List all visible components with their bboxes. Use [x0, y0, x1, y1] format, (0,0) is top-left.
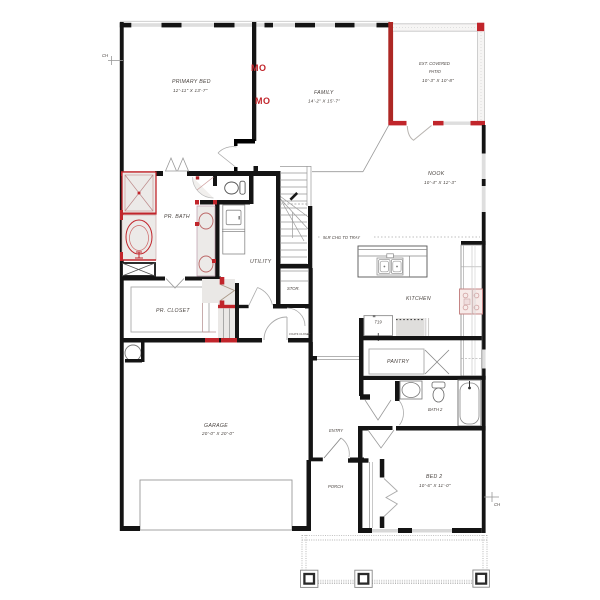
svg-text:PORCH: PORCH [328, 484, 344, 489]
svg-text:10'-4" X 12'-3": 10'-4" X 12'-3" [424, 180, 456, 185]
svg-text:UTILITY: UTILITY [250, 259, 272, 265]
svg-text:CH: CH [102, 53, 109, 58]
svg-text:PATIO: PATIO [429, 69, 442, 74]
svg-text:T19: T19 [375, 320, 383, 325]
svg-text:NOOK: NOOK [428, 171, 445, 177]
svg-text:CH: CH [494, 502, 501, 507]
svg-text:9LR CHG TO TRAY: 9LR CHG TO TRAY [323, 235, 361, 240]
svg-text:GARAGE: GARAGE [204, 423, 228, 429]
svg-text:PRIMARY BED: PRIMARY BED [172, 79, 211, 85]
svg-text:KITCHEN: KITCHEN [406, 296, 431, 302]
svg-text:COATS CLOSET: COATS CLOSET [289, 332, 311, 336]
svg-text:FAMILY: FAMILY [314, 90, 334, 96]
svg-text:EXT. COVERED: EXT. COVERED [419, 61, 450, 66]
svg-text:ENTRY: ENTRY [329, 428, 344, 433]
svg-text:PANTRY: PANTRY [387, 359, 410, 365]
svg-text:12'-11" X 13'-7": 12'-11" X 13'-7" [173, 88, 208, 93]
svg-text:MO: MO [255, 96, 271, 106]
svg-text:14'-2" X 15'-7": 14'-2" X 15'-7" [308, 99, 340, 104]
svg-text:BATH 2: BATH 2 [428, 407, 443, 412]
svg-text:PR. BATH: PR. BATH [164, 214, 190, 220]
svg-text:20'-0" X 20'-0": 20'-0" X 20'-0" [201, 431, 234, 436]
svg-text:MO: MO [251, 63, 267, 73]
svg-text:10'-3" X 10'-8": 10'-3" X 10'-8" [422, 78, 454, 83]
svg-text:PR. CLOSET: PR. CLOSET [156, 308, 190, 314]
svg-text:10'-6" X 11'-0": 10'-6" X 11'-0" [419, 483, 451, 488]
svg-text:STOR.: STOR. [287, 286, 300, 291]
svg-text:BED 2: BED 2 [426, 474, 443, 480]
